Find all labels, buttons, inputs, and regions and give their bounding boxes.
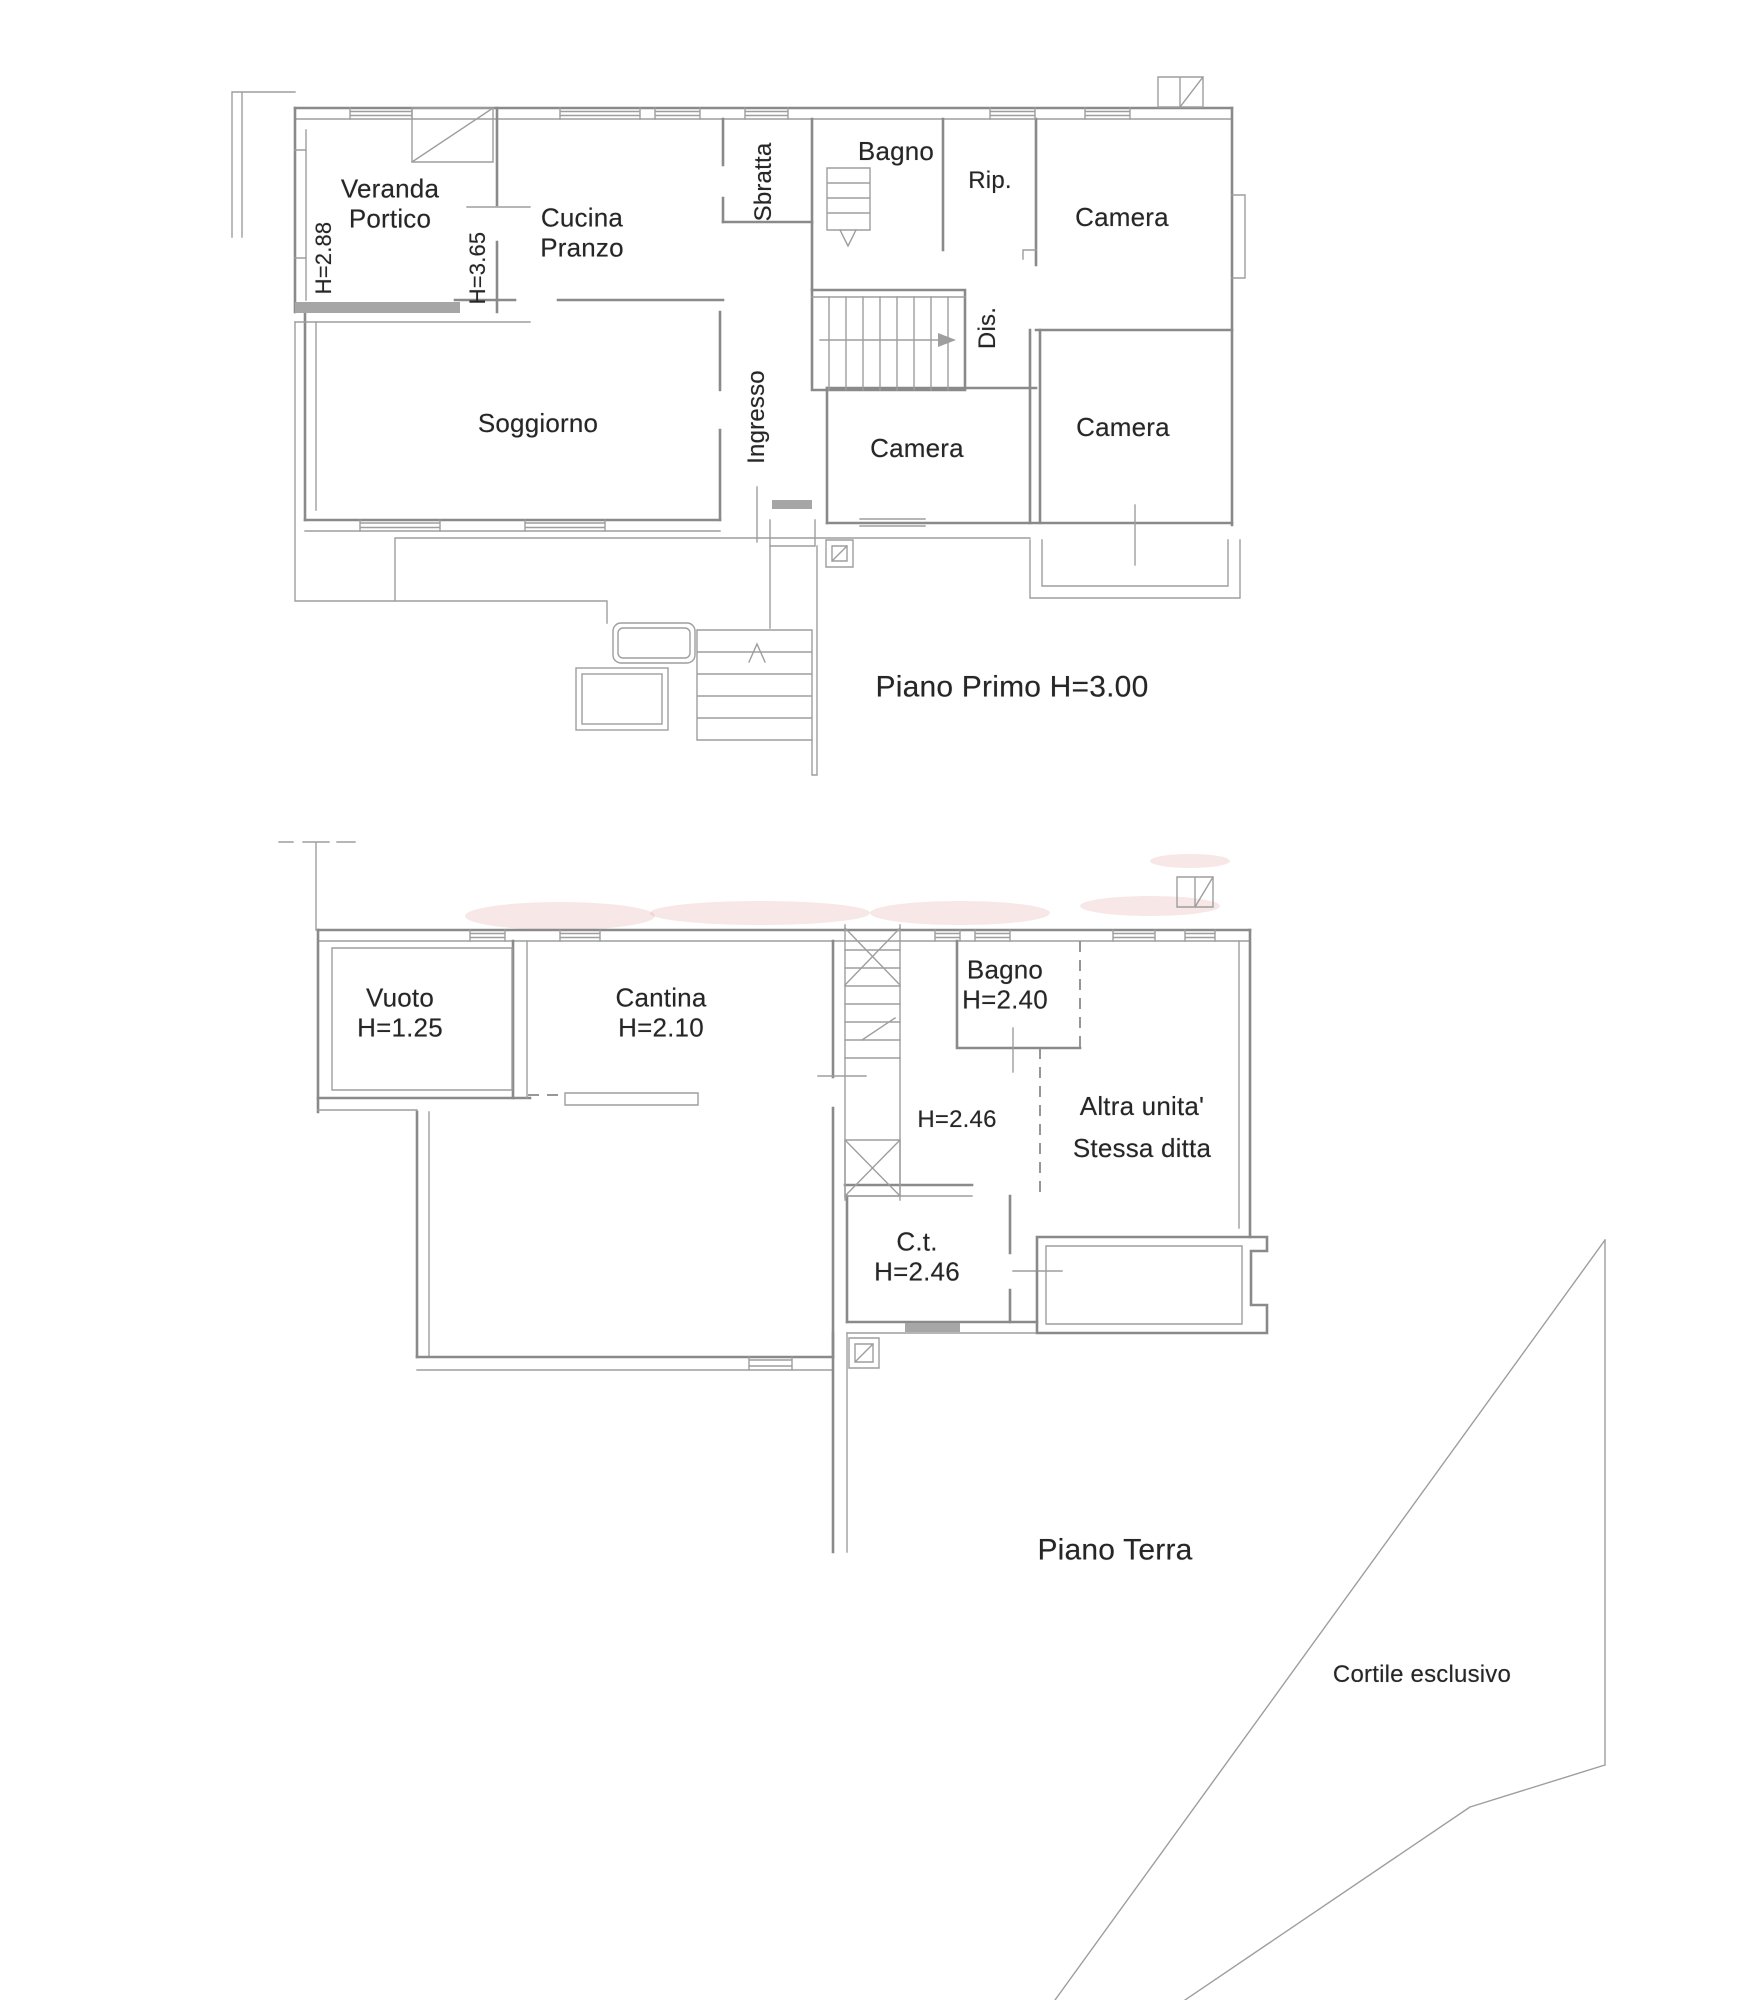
floor1-caption: Piano Primo H=3.00 — [876, 669, 1149, 704]
room-label-camera-c: Camera — [870, 433, 964, 463]
floor0-walls — [318, 930, 1250, 1552]
room-label-bagno-gf: Bagno H=2.40 — [962, 955, 1048, 1016]
exterior-stairs-icon — [697, 546, 817, 775]
watermark — [465, 854, 1230, 930]
benchmark-icon — [279, 842, 355, 930]
room-label-dis: Dis. — [974, 307, 1002, 349]
height-label-veranda: H=2.88 — [311, 222, 337, 295]
room-label-veranda: Veranda Portico — [341, 174, 439, 235]
balcony — [860, 505, 1240, 598]
chimney-icon — [1158, 77, 1203, 107]
room-label-soggiorno: Soggiorno — [478, 408, 598, 438]
room-label-sbratta: Sbratta — [750, 143, 778, 222]
courtyard-boundary — [1055, 1240, 1605, 2000]
height-label-cucina: H=3.65 — [465, 232, 491, 305]
stairs-icon — [812, 290, 965, 390]
ladder-icon — [827, 168, 870, 246]
drain-icon-gf — [849, 1338, 879, 1368]
height-label-hall: H=2.46 — [917, 1106, 996, 1134]
room-label-ct: C.t. H=2.46 — [874, 1227, 960, 1288]
room-label-altra-unita: Altra unita' Stessa ditta — [1073, 1085, 1211, 1169]
room-label-cantina: Cantina H=2.10 — [615, 983, 706, 1044]
outbuilding — [1037, 1237, 1267, 1333]
stairs-icon-gf — [818, 925, 900, 1200]
room-label-rip: Rip. — [968, 167, 1011, 195]
window-icons-top-gf — [470, 930, 1215, 941]
entry-door — [757, 487, 815, 546]
floor0-caption: Piano Terra — [1037, 1532, 1192, 1567]
drain-icon — [826, 540, 853, 567]
floor0-plan — [279, 842, 1605, 2000]
cantina-bench — [528, 1093, 698, 1105]
floorplan-page: Veranda Portico H=2.88 Cucina Pranzo H=3… — [0, 0, 1760, 2000]
window-icons-top — [350, 108, 1130, 119]
window-icon-east — [1232, 195, 1245, 278]
room-label-ingresso: Ingresso — [743, 370, 771, 464]
room-label-vuoto: Vuoto H=1.25 — [357, 983, 443, 1044]
window-icons-soggiorno — [360, 520, 605, 531]
window-icon-bottom-gf — [749, 1357, 792, 1370]
room-label-camera-ne: Camera — [1075, 202, 1169, 232]
room-label-cucina: Cucina Pranzo — [540, 203, 624, 264]
courtyard-label: Cortile esclusivo — [1333, 1661, 1511, 1689]
wall-stub — [232, 92, 295, 237]
floorplan-drawing — [0, 0, 1760, 2000]
room-label-bagno-f1: Bagno — [858, 136, 934, 166]
room-label-camera-se: Camera — [1076, 412, 1170, 442]
